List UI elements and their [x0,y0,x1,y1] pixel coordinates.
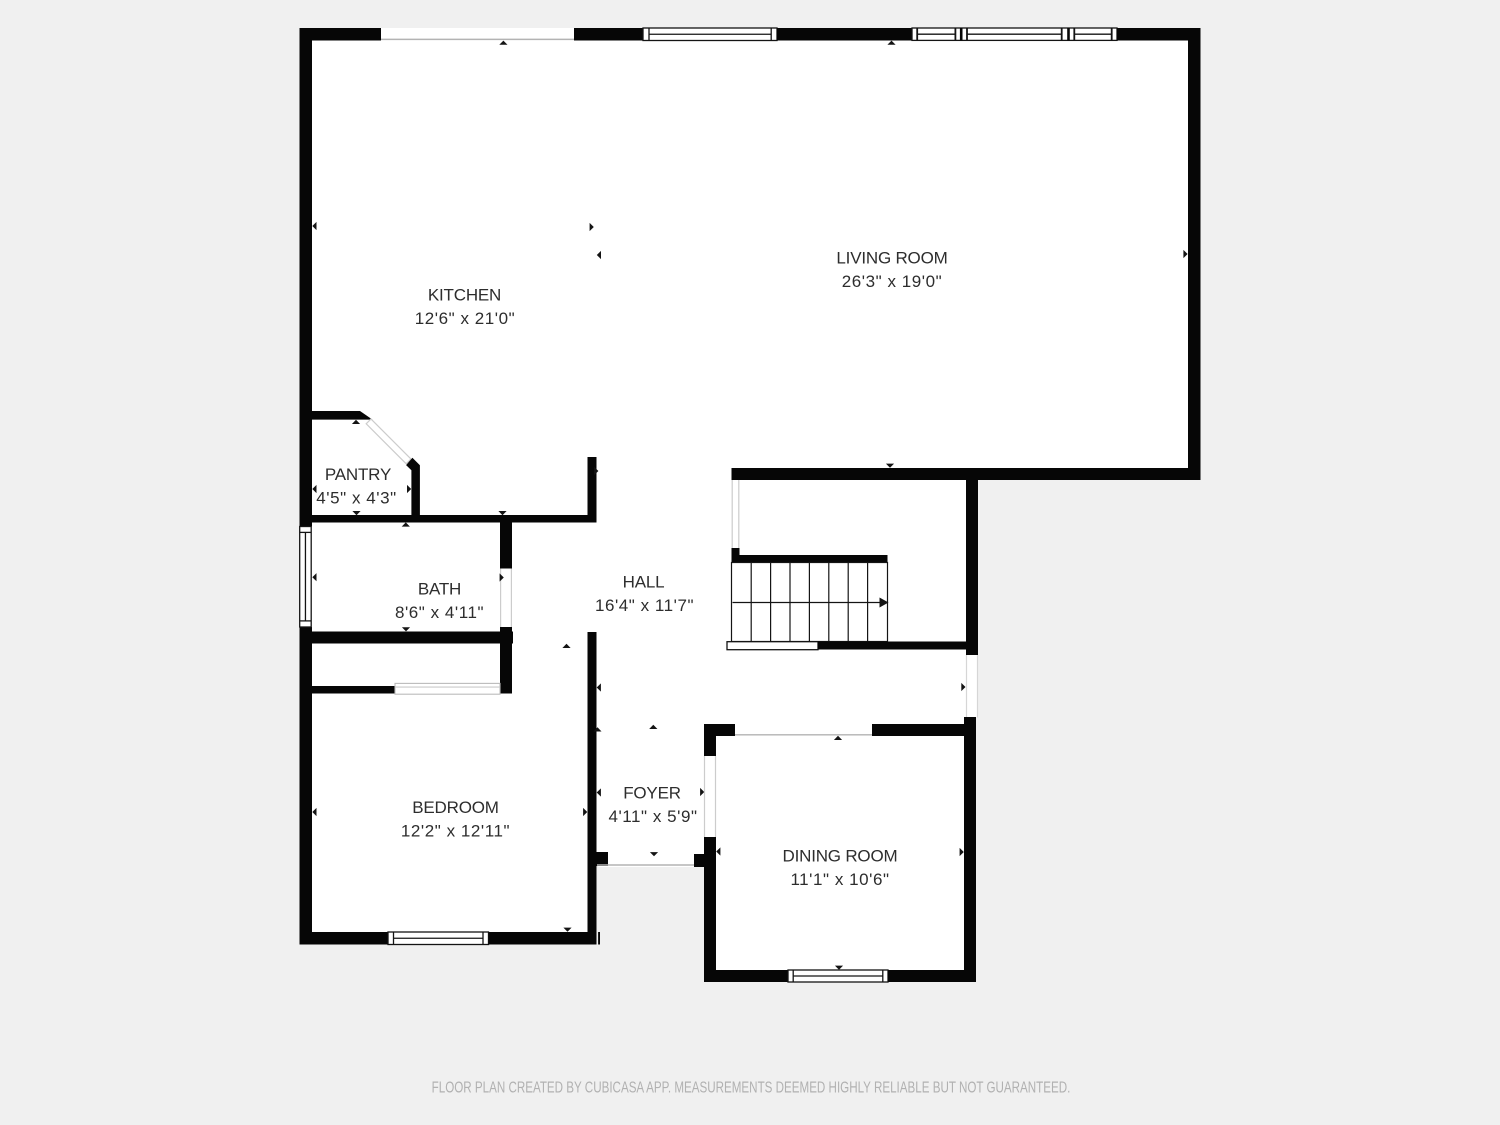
svg-text:12'6" x 21'0": 12'6" x 21'0" [415,309,515,328]
svg-text:16'4" x 11'7": 16'4" x 11'7" [595,596,694,615]
svg-text:DINING ROOM: DINING ROOM [783,847,898,866]
svg-text:4'5" x 4'3": 4'5" x 4'3" [316,489,396,508]
svg-text:BATH: BATH [418,580,461,599]
svg-text:HALL: HALL [623,573,665,592]
svg-text:BEDROOM: BEDROOM [412,798,498,817]
svg-text:26'3" x 19'0": 26'3" x 19'0" [842,272,942,291]
svg-text:KITCHEN: KITCHEN [428,286,501,305]
svg-text:4'11" x 5'9": 4'11" x 5'9" [608,807,697,826]
svg-text:FOYER: FOYER [623,784,681,803]
svg-text:12'2" x 12'11": 12'2" x 12'11" [401,822,510,841]
svg-text:PANTRY: PANTRY [325,465,391,484]
svg-text:8'6" x 4'11": 8'6" x 4'11" [395,603,484,622]
svg-text:FLOOR PLAN CREATED BY CUBICASA: FLOOR PLAN CREATED BY CUBICASA APP. MEAS… [432,1079,1071,1096]
svg-text:LIVING ROOM: LIVING ROOM [836,249,947,268]
svg-text:11'1" x 10'6": 11'1" x 10'6" [790,870,889,889]
